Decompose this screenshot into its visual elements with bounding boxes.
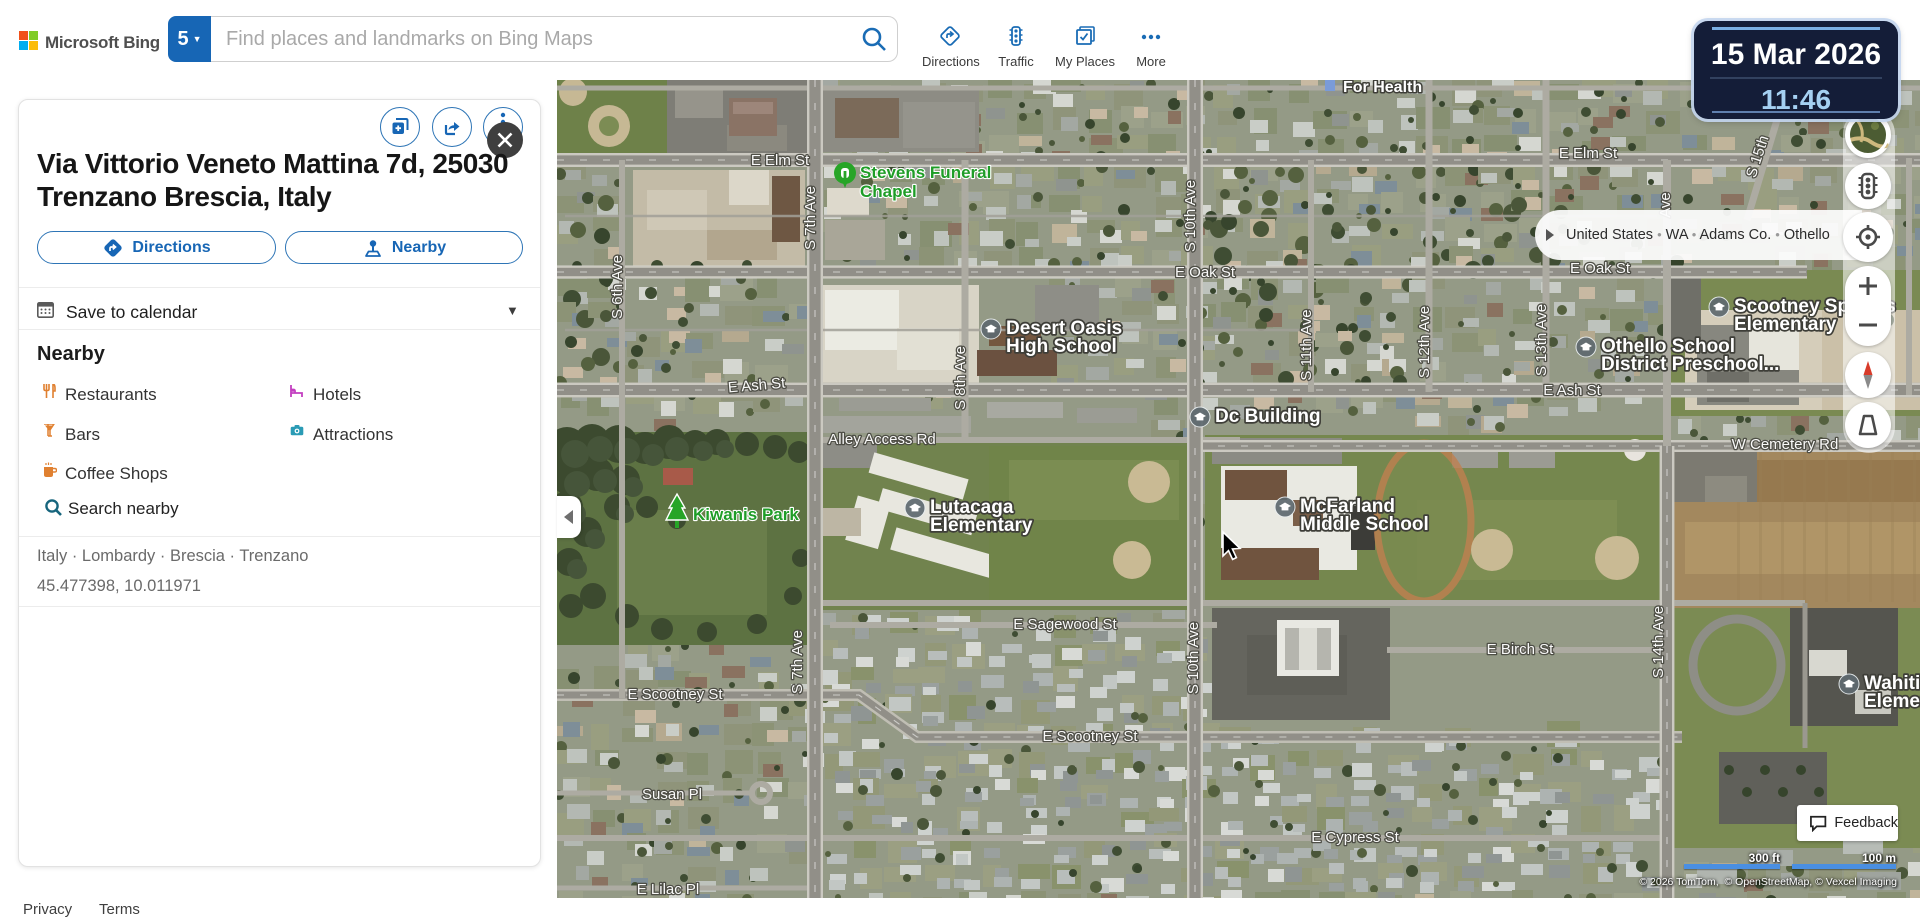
svg-text:Stevens Funeral: Stevens Funeral — [860, 163, 991, 182]
svg-text:S 13th Ave: S 13th Ave — [1533, 304, 1550, 376]
svg-text:E Elm St: E Elm St — [751, 152, 810, 169]
svg-text:S 10th Ave: S 10th Ave — [1185, 622, 1202, 694]
svg-text:Susan Pl: Susan Pl — [642, 786, 702, 803]
svg-text:District Preschool...: District Preschool... — [1601, 354, 1779, 375]
svg-text:S 7th Ave: S 7th Ave — [802, 186, 819, 250]
svg-text:E Cypress St: E Cypress St — [1311, 829, 1399, 846]
svg-text:S 11th Ave: S 11th Ave — [1298, 309, 1315, 380]
svg-text:S 12th Ave: S 12th Ave — [1416, 306, 1433, 378]
svg-text:Elementary: Elementary — [930, 515, 1033, 536]
svg-text:Elementary: Elementary — [1734, 314, 1837, 335]
svg-text:E Scootney St: E Scootney St — [627, 686, 723, 703]
svg-text:E Scootney St: E Scootney St — [1042, 728, 1138, 745]
svg-text:Alley Access Rd: Alley Access Rd — [828, 431, 936, 448]
svg-text:S 7th Ave: S 7th Ave — [789, 630, 806, 694]
svg-text:Element...: Element... — [1864, 691, 1920, 712]
svg-text:E Ash St: E Ash St — [1543, 382, 1601, 399]
svg-text:Dc Building: Dc Building — [1215, 406, 1321, 427]
svg-text:Kiwanis Park: Kiwanis Park — [693, 505, 799, 524]
svg-text:W Cemetery Rd: W Cemetery Rd — [1732, 436, 1839, 453]
svg-text:E Elm St: E Elm St — [1559, 145, 1618, 162]
svg-text:E Lilac Pl: E Lilac Pl — [637, 881, 700, 898]
svg-text:S 8th Ave: S 8th Ave — [952, 346, 969, 410]
svg-text:High School: High School — [1006, 336, 1117, 357]
svg-text:S 10th Ave: S 10th Ave — [1182, 180, 1199, 252]
svg-text:E Oak St: E Oak St — [1175, 264, 1236, 281]
svg-text:For Health: For Health — [1343, 80, 1422, 96]
svg-text:S 6th Ave: S 6th Ave — [609, 255, 626, 319]
svg-text:Middle School: Middle School — [1300, 514, 1429, 535]
svg-text:Chapel: Chapel — [860, 182, 917, 201]
svg-text:E Birch St: E Birch St — [1487, 641, 1555, 658]
svg-text:S 14th Ave: S 14th Ave — [1650, 606, 1667, 678]
svg-text:E Oak St: E Oak St — [1570, 260, 1631, 277]
svg-text:E Sagewood St: E Sagewood St — [1013, 616, 1117, 633]
